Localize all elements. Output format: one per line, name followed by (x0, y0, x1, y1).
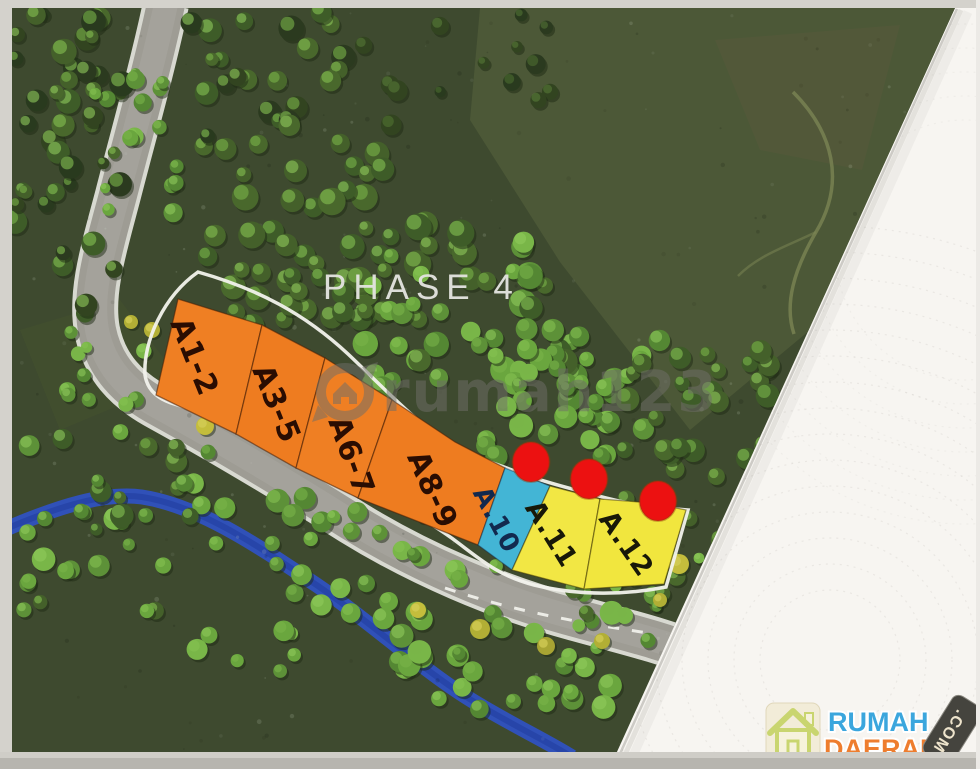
sold-marker (640, 481, 677, 521)
brand-line1: RUMAH (828, 707, 929, 737)
sold-marker (513, 442, 550, 482)
listing-image: A1-2 A3-5 A6-7 A8-9 A.10 A.11 A.12 PHASE… (0, 0, 980, 769)
sold-marker (571, 459, 608, 499)
watermark-text: rumah123 (382, 360, 718, 425)
phase-title: PHASE 4 (323, 268, 520, 307)
